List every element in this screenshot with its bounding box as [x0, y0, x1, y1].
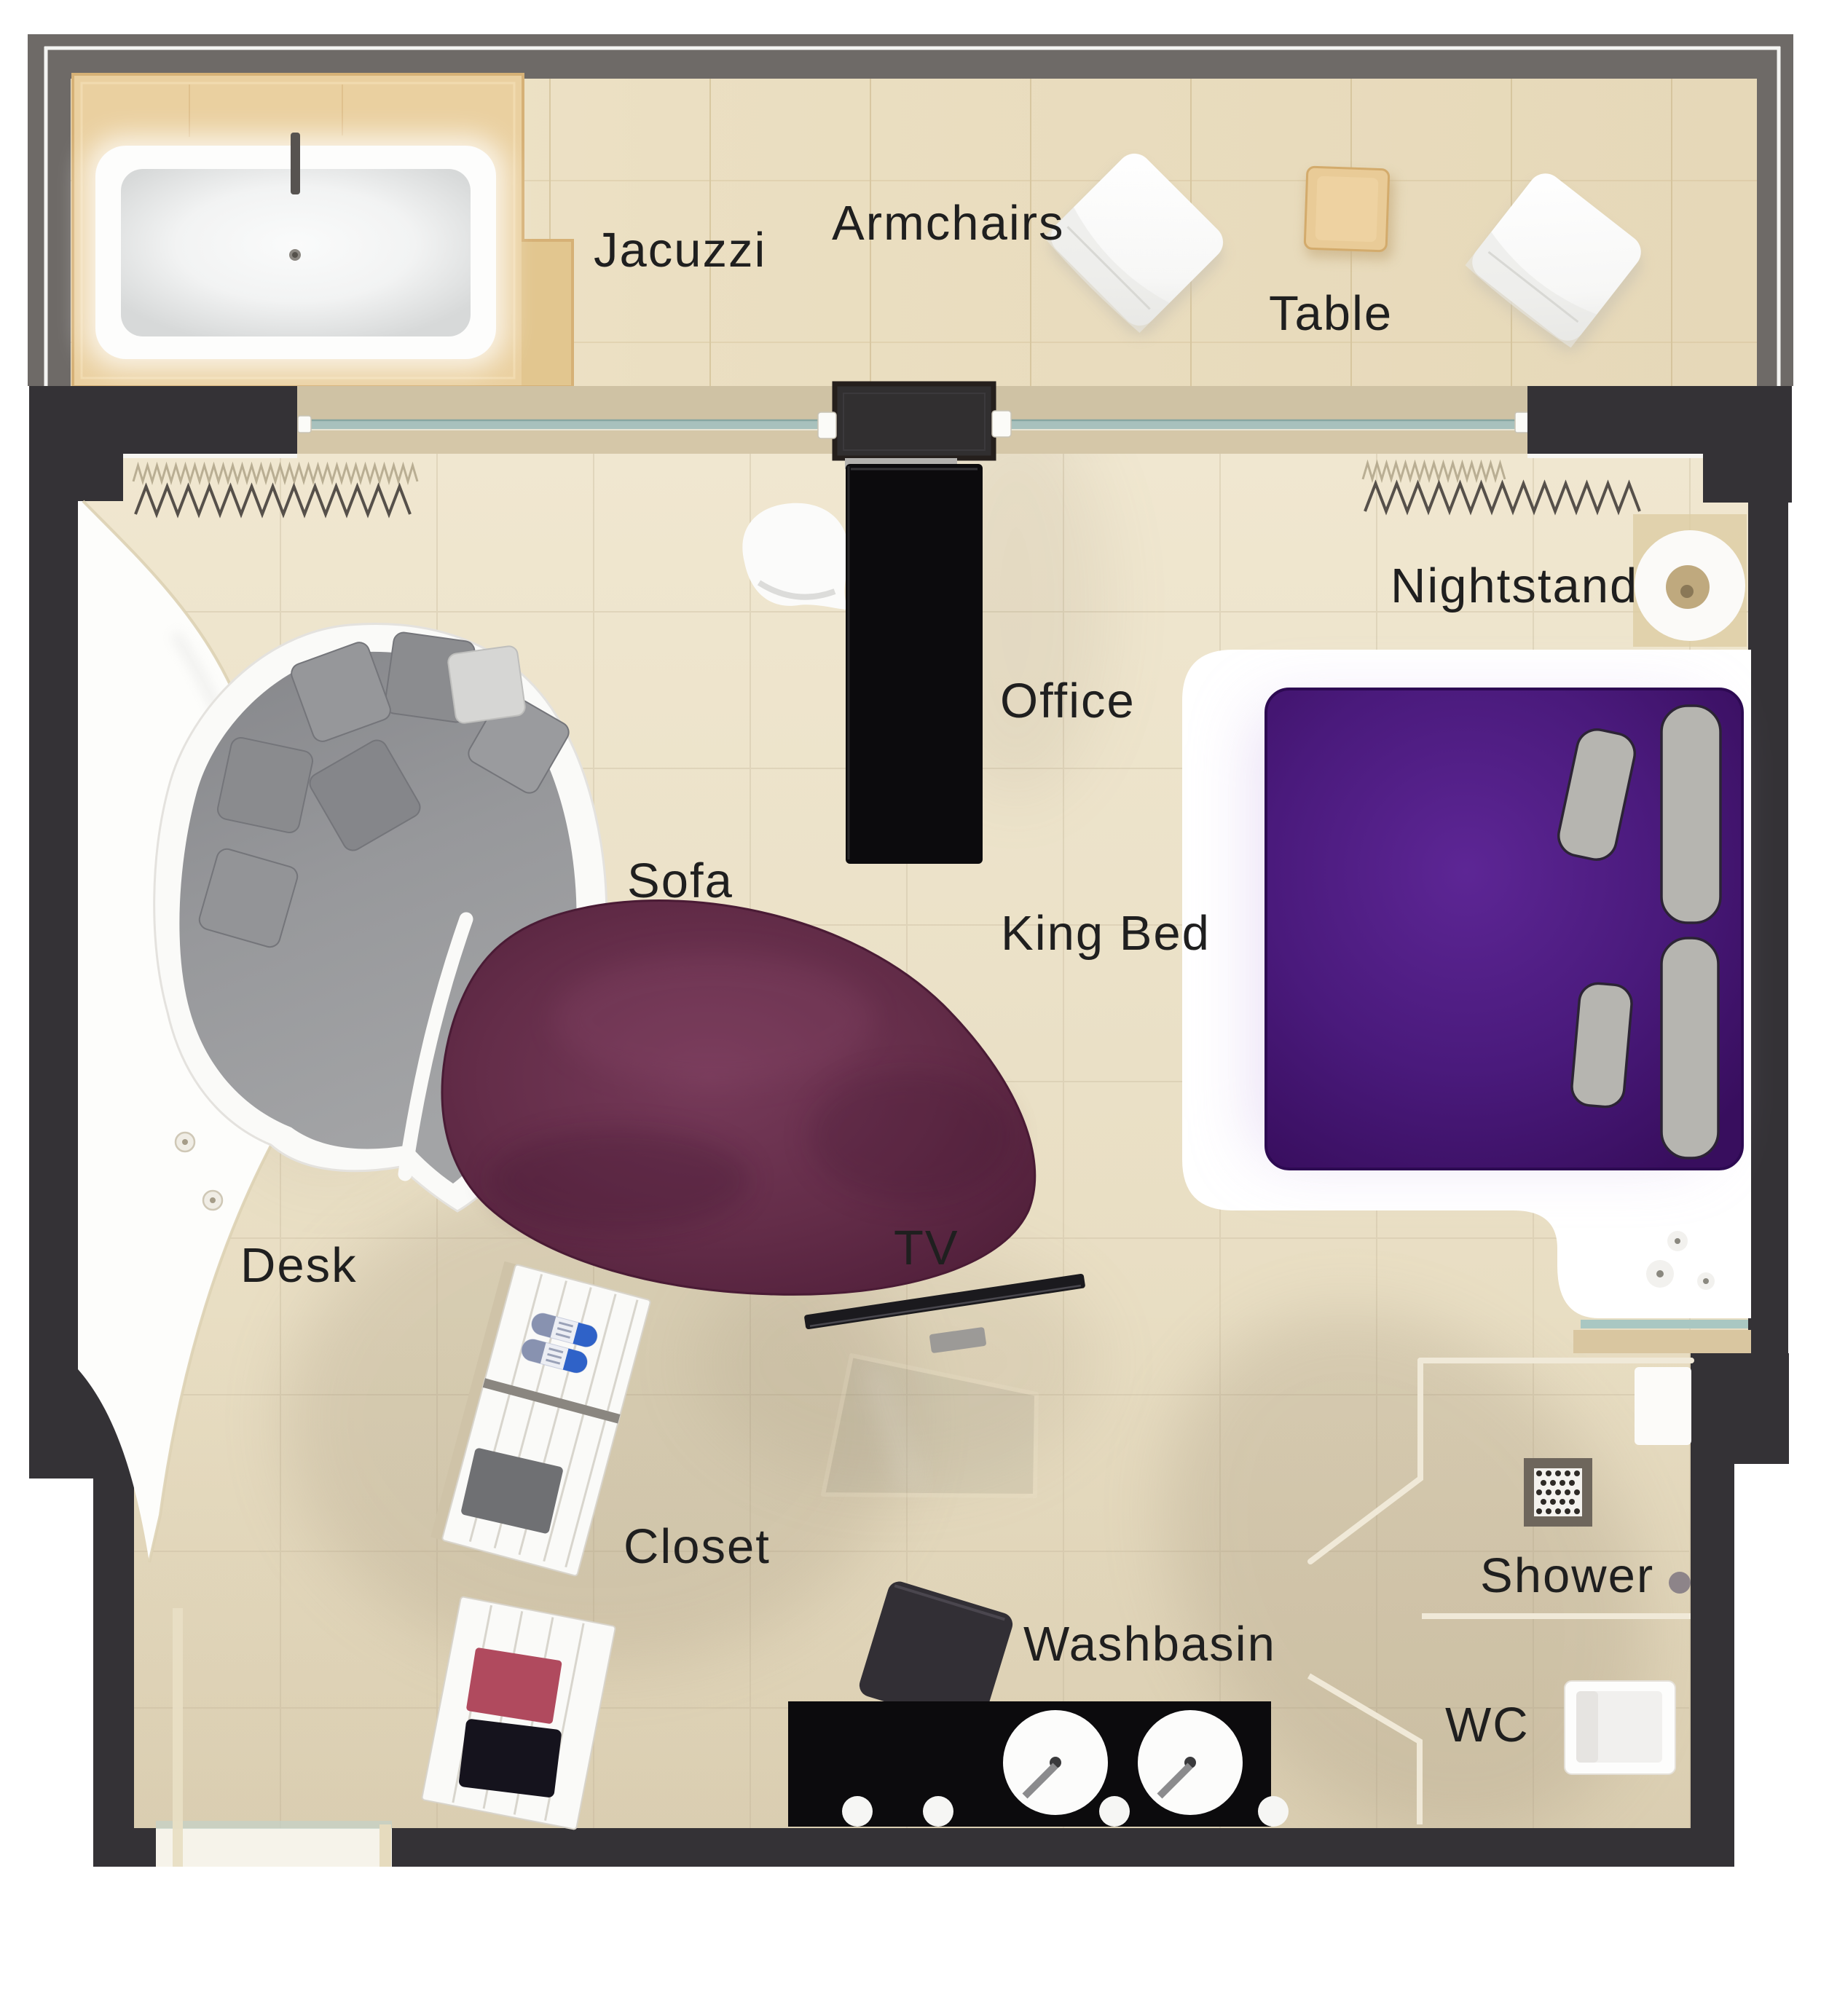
svg-text:Desk: Desk: [240, 1238, 358, 1293]
svg-text:Armchairs: Armchairs: [832, 196, 1065, 251]
svg-text:Sofa: Sofa: [627, 854, 733, 908]
svg-text:Shower: Shower: [1480, 1548, 1654, 1603]
svg-text:Office: Office: [1000, 674, 1136, 728]
svg-text:TV: TV: [894, 1221, 959, 1275]
svg-text:WC: WC: [1445, 1698, 1530, 1752]
svg-text:Closet: Closet: [624, 1519, 771, 1574]
svg-text:King Bed: King Bed: [1001, 906, 1211, 961]
svg-text:Washbasin: Washbasin: [1023, 1617, 1276, 1672]
svg-text:Nightstand: Nightstand: [1391, 559, 1638, 613]
svg-text:Table: Table: [1269, 286, 1393, 341]
svg-text:Jacuzzi: Jacuzzi: [594, 223, 766, 277]
